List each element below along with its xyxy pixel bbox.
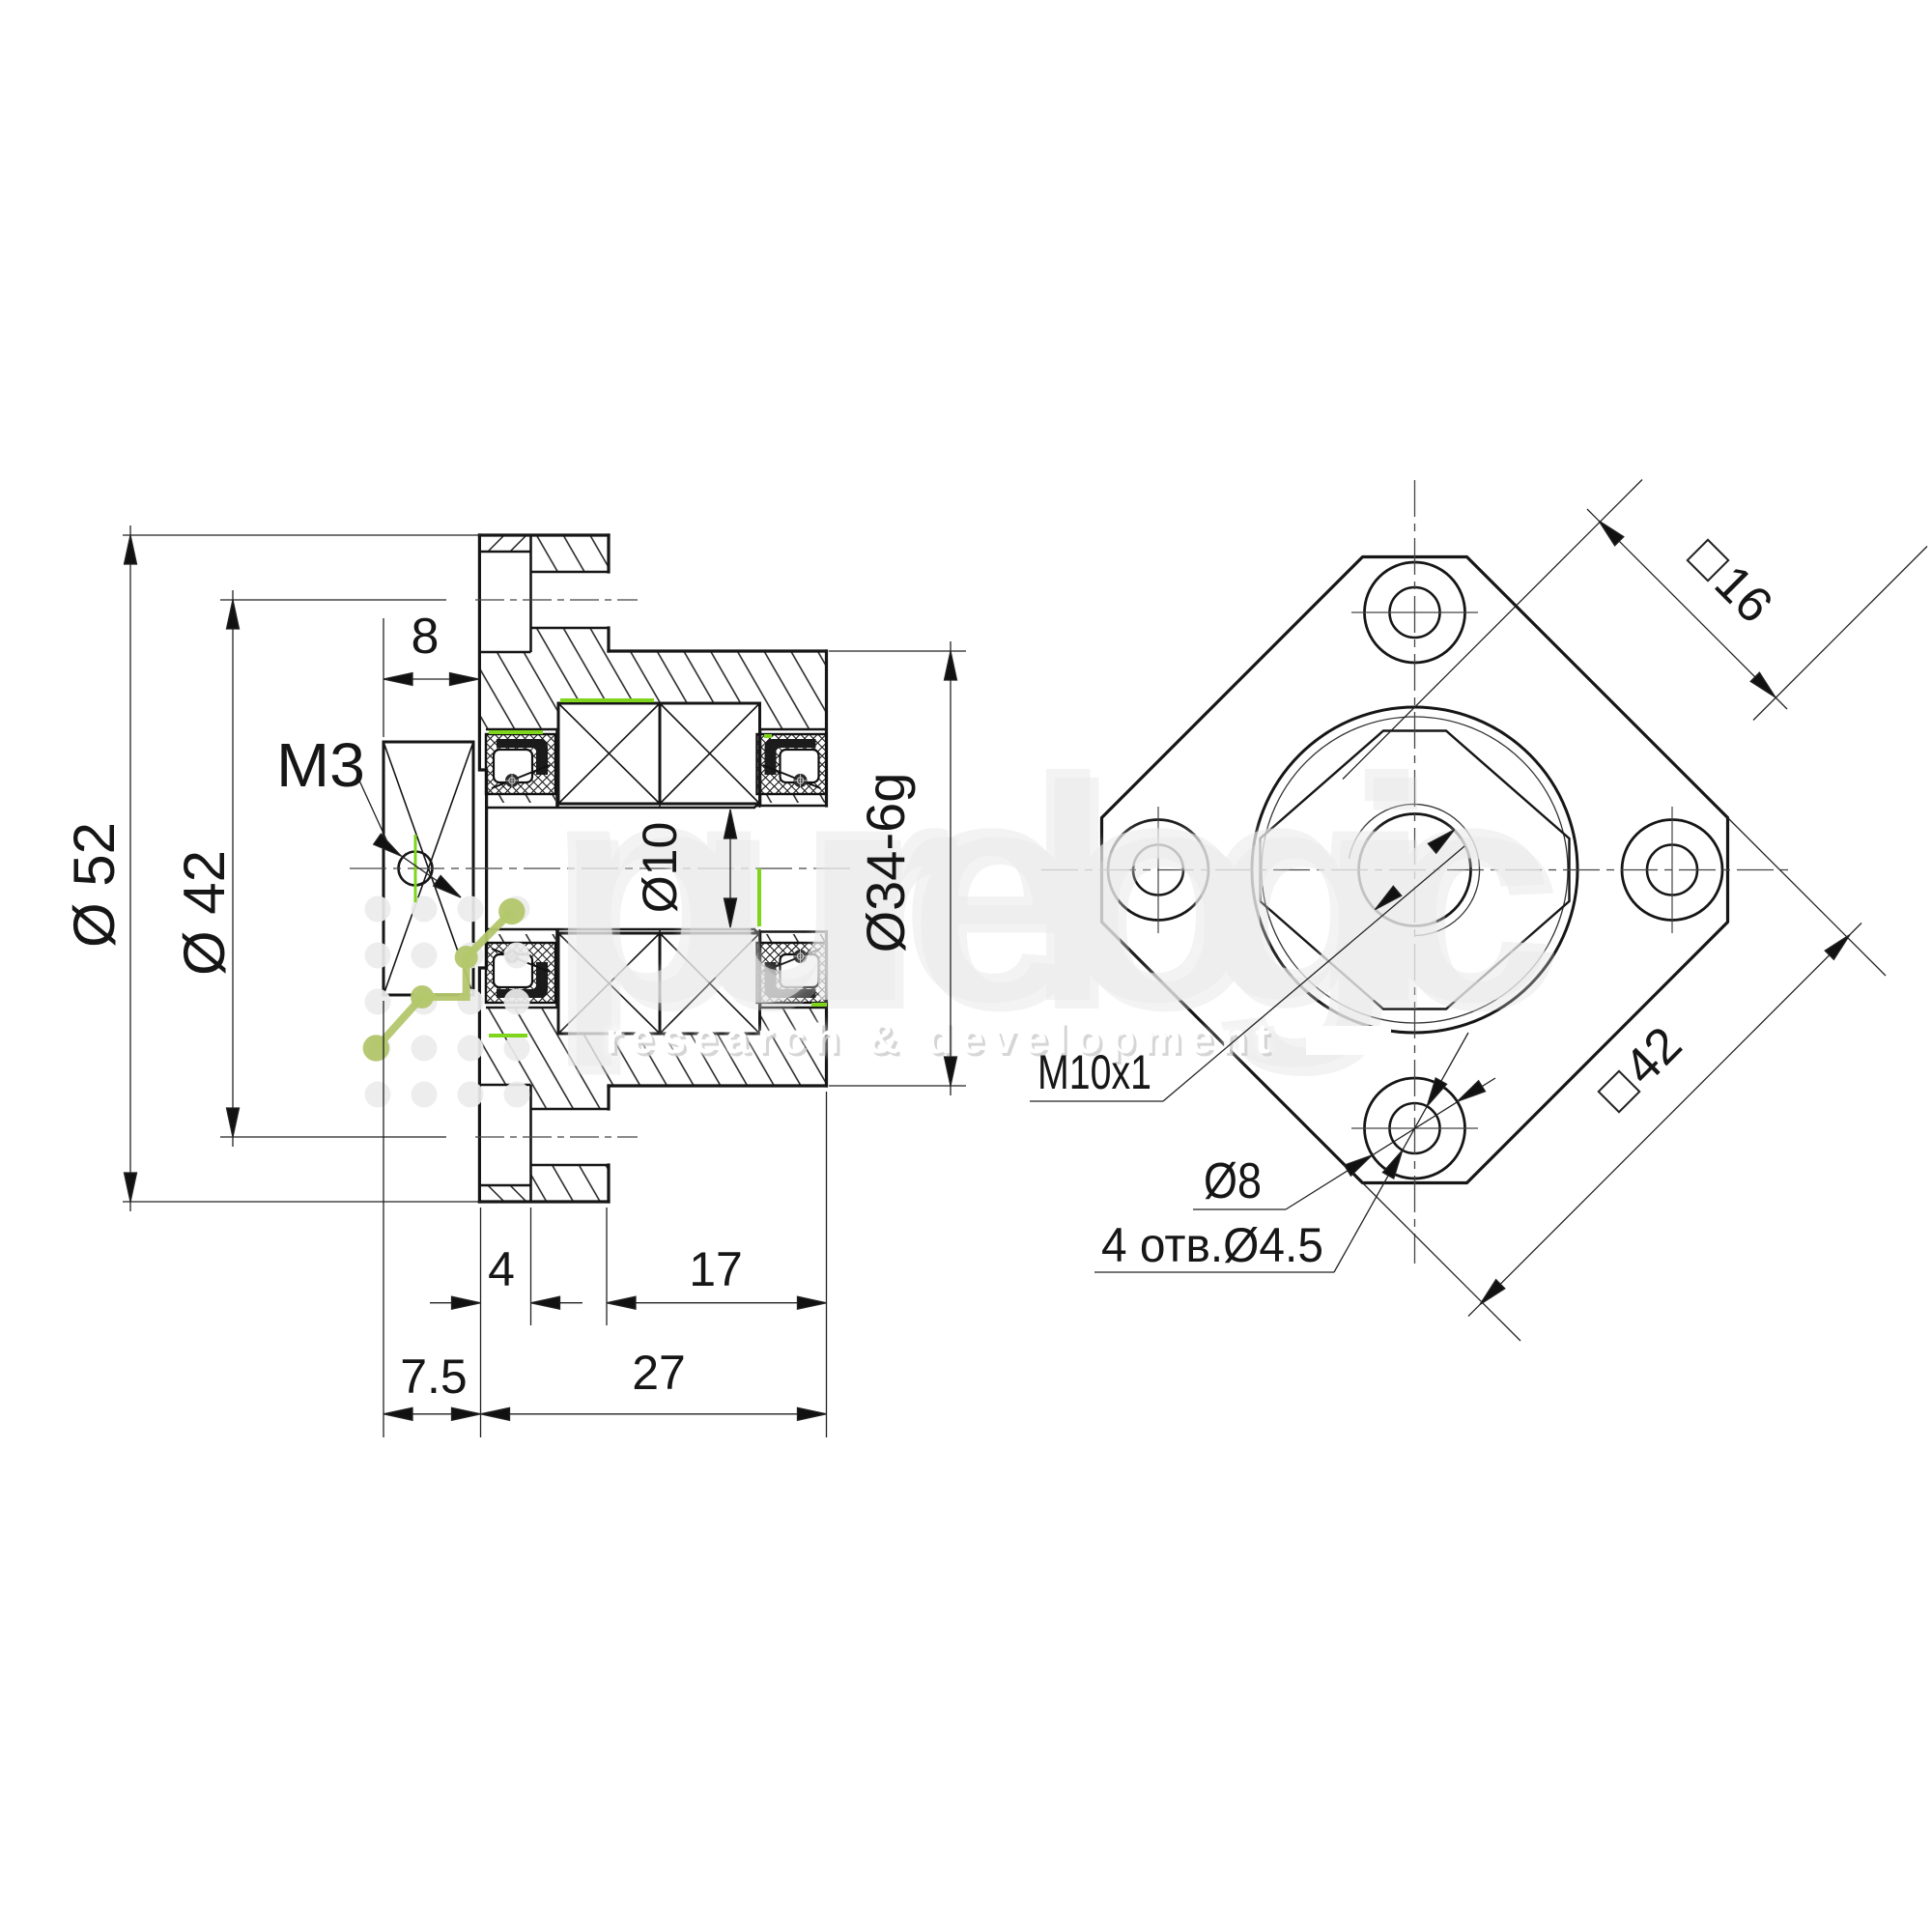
svg-text:M10x1: M10x1 <box>1037 1045 1151 1099</box>
svg-text:4 отв.Ø4.5: 4 отв.Ø4.5 <box>1101 1218 1323 1272</box>
svg-text:8: 8 <box>412 609 440 665</box>
svg-text:Ø8: Ø8 <box>1204 1153 1262 1209</box>
svg-text:M3: M3 <box>276 730 365 800</box>
svg-text:Ø 42: Ø 42 <box>172 850 237 976</box>
svg-text:research & development: research & development <box>606 1015 1277 1063</box>
svg-text:Ø10: Ø10 <box>633 822 687 914</box>
svg-text:Ø34-6g: Ø34-6g <box>855 773 916 953</box>
svg-text:7.5: 7.5 <box>400 1350 468 1404</box>
svg-text:17: 17 <box>689 1242 743 1296</box>
svg-text:4: 4 <box>488 1242 515 1296</box>
svg-text:27: 27 <box>632 1346 686 1400</box>
svg-text:Ø 52: Ø 52 <box>62 822 127 948</box>
